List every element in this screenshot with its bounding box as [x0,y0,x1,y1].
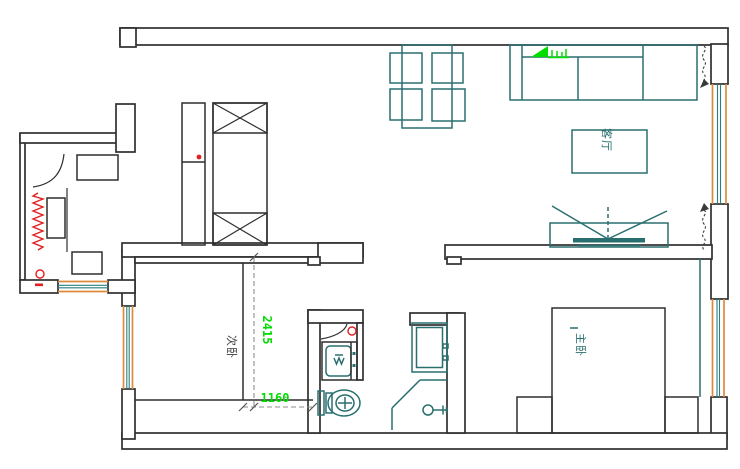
master-bed [552,308,665,433]
wall-bottom [122,433,727,449]
window-right-upper [713,84,727,204]
dining-chair [432,53,463,83]
window-right-lower [713,299,725,397]
dining-table [402,45,452,128]
closet-divider-wall [357,323,363,380]
dining-chair [390,53,422,83]
kitchen-wall-top [20,133,117,143]
kitchen-stove [77,155,118,180]
plant-icon [531,46,569,58]
nightstand-left [517,397,552,433]
dining-chair [390,89,422,120]
closet-top-wall [308,310,363,323]
kitchen [33,154,118,286]
bathroom-east-wall [447,313,465,433]
entry-wall-block [116,104,135,152]
entry-wardrobe [182,103,267,245]
bedroom2 [135,263,313,400]
toilet-icon [318,390,360,416]
radiator-icon [33,193,43,250]
wall-top [120,28,728,45]
curtain-upper [700,46,709,88]
closet-door-arc [321,324,347,339]
window-kitchen [58,282,108,292]
master-bedroom [517,258,700,433]
dining-chair [432,89,465,121]
kitchen-wall-bottom-right [108,280,135,293]
dimension-vertical-label: 2415 [260,316,274,345]
bedroom2-top-wall [135,257,318,263]
kitchen-counter-arc [33,154,64,187]
kitchen-wall-left [20,134,25,280]
master-bedroom-label: 主卧 [574,333,587,357]
wall-right-upper [711,44,728,84]
wall-left-lower [122,389,135,439]
shower-head-icon [423,405,447,415]
floor-plan-drawing: 客厅 次卧 主卧 2415 1160 [0,0,740,469]
kitchen-counter-low [72,252,102,274]
wardrobe-side-cabinet [182,103,205,245]
dimension-lines [239,253,317,411]
washing-machine-icon [322,342,357,380]
kitchen-wall-bottom-left [20,280,58,293]
wall-left-upper [122,250,135,306]
floor-plan: 客厅 次卧 主卧 2415 1160 [0,0,740,469]
shower-area [392,380,447,430]
tv-cabinet [550,223,668,247]
bedroom2-label: 次卧 [225,335,239,359]
livingroom-south-wall-notch [447,257,461,264]
wall-top-step [120,28,136,47]
foyer-south-wall-deep [318,243,363,263]
bathroom [392,323,448,430]
tv-unit [550,206,668,247]
bathroom-sink [412,323,448,372]
wardrobe-body [213,103,267,245]
laundry-closet [318,324,360,416]
wall-right-mid [711,204,728,299]
bedroom2-east-wall-stub [308,257,320,265]
kitchen-sink [47,198,65,238]
dining-set [390,45,465,128]
nightstand-right [665,397,698,433]
living-room-label: 客厅 [600,128,614,152]
curtain-lower [700,203,709,250]
gas-valve-icon [36,270,44,278]
wardrobe-marker-dot [197,155,202,160]
window-bedroom2 [124,306,133,389]
water-valve-icon [348,327,356,335]
dimension-horizontal-label: 1160 [261,391,290,405]
